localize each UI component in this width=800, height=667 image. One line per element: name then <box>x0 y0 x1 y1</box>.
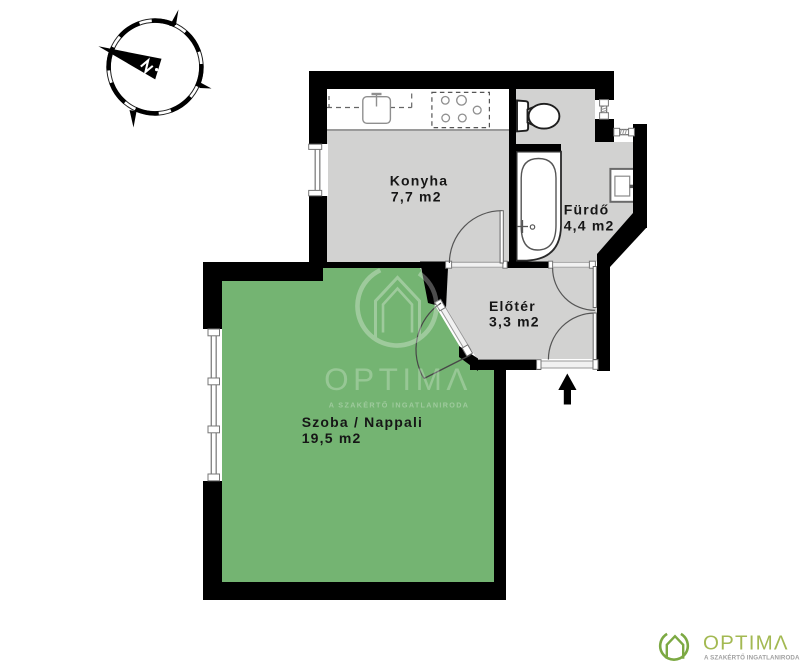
svg-text:A SZAKÉRTŐ INGATLANIRODA: A SZAKÉRTŐ INGATLANIRODA <box>704 653 800 661</box>
svg-text:Konyha: Konyha <box>390 172 449 188</box>
svg-text:Előtér: Előtér <box>489 298 536 314</box>
svg-text:Fürdő: Fürdő <box>564 202 610 218</box>
svg-text:4,4 m2: 4,4 m2 <box>564 218 615 234</box>
svg-text:OPTIMΛ: OPTIMΛ <box>703 632 789 655</box>
svg-text:7,7 m2: 7,7 m2 <box>391 188 442 204</box>
svg-text:OPTIMΛ: OPTIMΛ <box>324 361 472 397</box>
svg-text:19,5 m2: 19,5 m2 <box>302 430 362 446</box>
svg-text:Szoba / Nappali: Szoba / Nappali <box>302 414 423 430</box>
svg-text:A SZAKÉRTŐ INGATLANIRODA: A SZAKÉRTŐ INGATLANIRODA <box>329 401 470 410</box>
svg-text:3,3 m2: 3,3 m2 <box>489 314 540 330</box>
